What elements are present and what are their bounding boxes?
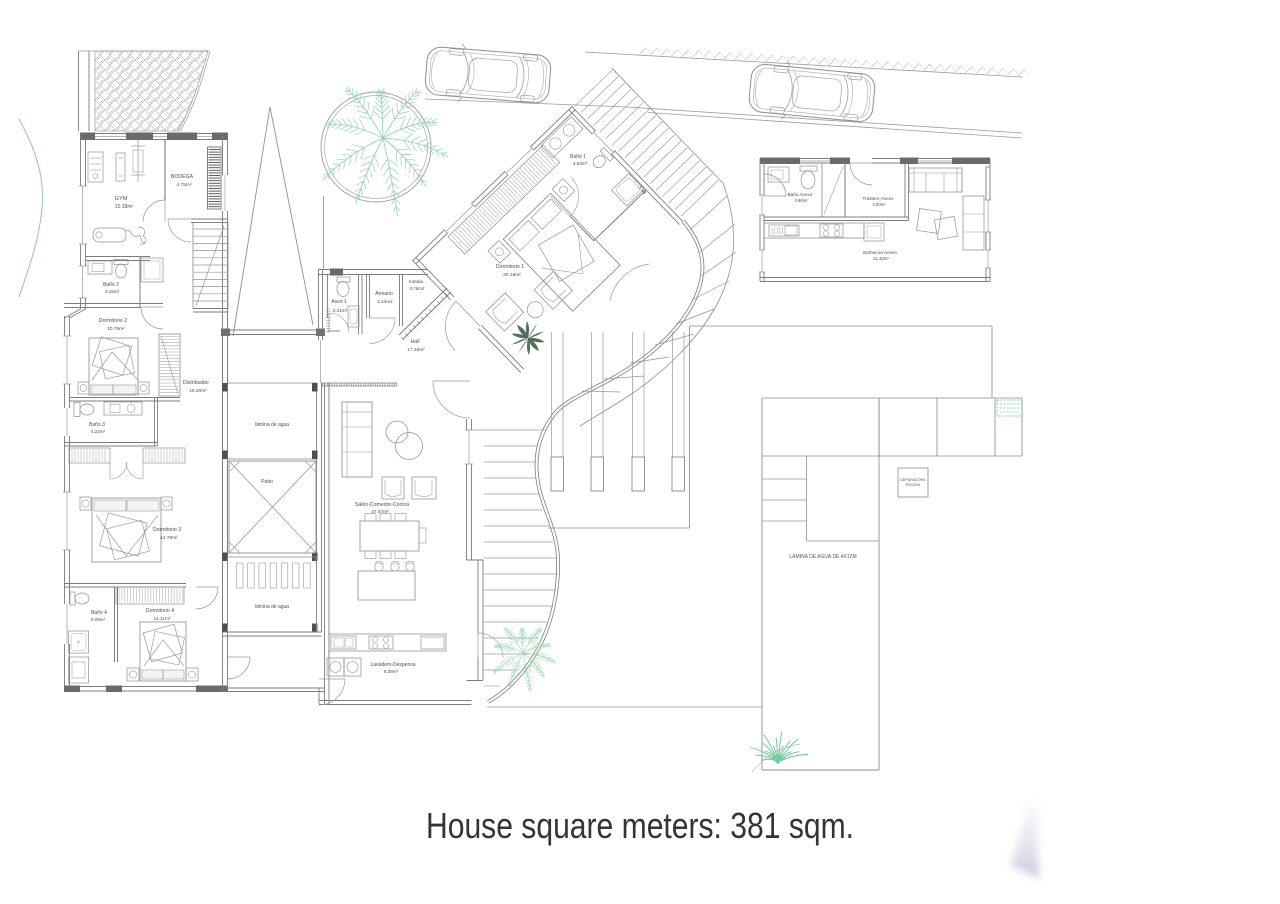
svg-text:Baño 1: Baño 1 xyxy=(570,154,586,160)
svg-text:Barbacoa Anexo: Barbacoa Anexo xyxy=(863,250,897,255)
svg-text:Baño 2: Baño 2 xyxy=(103,282,119,288)
svg-text:3.90m²: 3.90m² xyxy=(794,198,808,203)
svg-text:Trastero Anexo: Trastero Anexo xyxy=(863,196,894,201)
svg-text:Dormitorio 2: Dormitorio 2 xyxy=(99,318,127,324)
svg-text:BODEGA: BODEGA xyxy=(171,174,194,180)
svg-text:Salón-Comedor-Cocina: Salón-Comedor-Cocina xyxy=(355,502,409,508)
svg-text:8.39m²: 8.39m² xyxy=(384,669,399,674)
svg-text:Patio: Patio xyxy=(261,479,273,485)
svg-text:19.20m²: 19.20m² xyxy=(189,388,207,394)
svg-text:lámina de agua: lámina de agua xyxy=(255,604,289,610)
svg-text:11.11m²: 11.11m² xyxy=(154,616,171,622)
svg-text:Distribuidor: Distribuidor xyxy=(183,380,210,386)
svg-text:2.14m2: 2.14m2 xyxy=(377,299,393,304)
svg-text:Dormitorio 1: Dormitorio 1 xyxy=(496,264,524,270)
svg-text:4.15m²: 4.15m² xyxy=(105,289,120,294)
svg-text:House square meters: 381 sqm.: House square meters: 381 sqm. xyxy=(426,805,854,846)
svg-text:21.42m²: 21.42m² xyxy=(873,256,889,261)
svg-text:Baño Anexo: Baño Anexo xyxy=(788,192,813,197)
svg-text:0.76m2: 0.76m2 xyxy=(409,286,425,291)
svg-text:2.31m²: 2.31m² xyxy=(333,308,348,313)
svg-text:Instala: Instala xyxy=(409,279,423,285)
svg-text:Aseo 1: Aseo 1 xyxy=(331,299,347,305)
svg-text:PISCINA: PISCINA xyxy=(906,483,921,487)
svg-text:Armario: Armario xyxy=(375,291,393,297)
svg-text:Baño 4: Baño 4 xyxy=(91,610,107,616)
svg-text:lámina de agua: lámina de agua xyxy=(255,422,289,428)
svg-text:12.79m²: 12.79m² xyxy=(160,535,178,541)
svg-text:Lavadero-Despensa: Lavadero-Despensa xyxy=(370,662,415,668)
svg-text:10.18m²: 10.18m² xyxy=(115,204,134,210)
svg-text:Dormitorio 3: Dormitorio 3 xyxy=(153,527,181,533)
svg-text:5.09m²: 5.09m² xyxy=(91,617,106,622)
svg-text:DEPURADORA: DEPURADORA xyxy=(900,478,926,482)
svg-text:4.22m²: 4.22m² xyxy=(91,429,106,434)
svg-text:4.75m²: 4.75m² xyxy=(177,182,192,188)
svg-text:LÁMINA DE AGUA DE 4X12M: LÁMINA DE AGUA DE 4X12M xyxy=(789,553,856,560)
svg-text:17.33m²: 17.33m² xyxy=(407,347,425,353)
svg-text:GYM: GYM xyxy=(115,196,128,202)
svg-text:3.00m²: 3.00m² xyxy=(872,202,886,207)
svg-text:10.75m²: 10.75m² xyxy=(107,326,125,332)
svg-text:30.18m²: 30.18m² xyxy=(503,272,521,278)
svg-text:Dormitorio 4: Dormitorio 4 xyxy=(146,608,174,614)
svg-text:Baño 3: Baño 3 xyxy=(89,422,105,428)
svg-text:Hall: Hall xyxy=(411,339,420,345)
svg-text:4.53m²: 4.53m² xyxy=(573,161,588,166)
